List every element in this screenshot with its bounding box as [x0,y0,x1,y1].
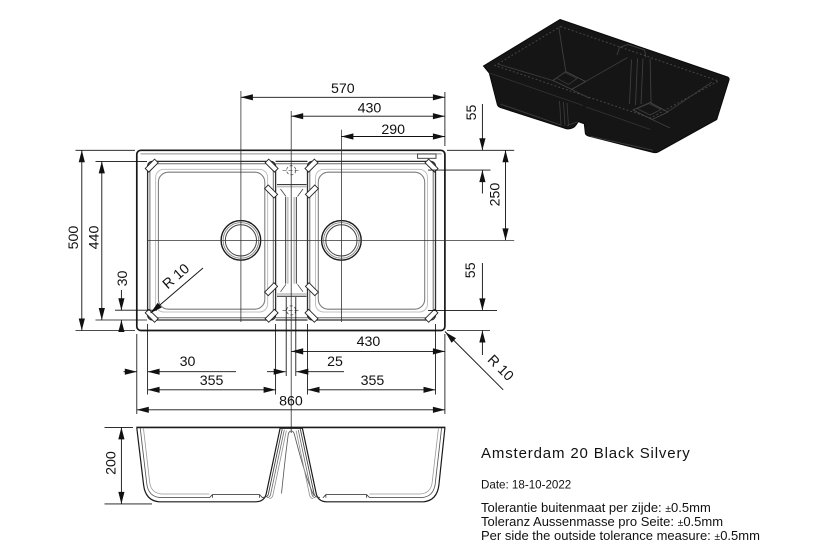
svg-text:570: 570 [331,81,355,97]
svg-text:Toleranz Aussenmasse pro Seite: Toleranz Aussenmasse pro Seite: ±0.5mm [481,514,723,529]
svg-text:200: 200 [103,451,119,475]
svg-text:250: 250 [488,183,504,207]
svg-text:30: 30 [115,271,131,287]
svg-text:Per side the outside tolerance: Per side the outside tolerance measure: … [481,528,760,543]
svg-text:55: 55 [464,105,480,121]
svg-text:Tolerantie buitenmaat per zijd: Tolerantie buitenmaat per zijde: ±0.5mm [481,500,711,515]
svg-text:440: 440 [86,226,102,250]
svg-text:430: 430 [358,101,382,117]
svg-text:355: 355 [361,373,385,389]
svg-text:25: 25 [327,354,343,370]
svg-text:Amsterdam 20 Black Silvery: Amsterdam 20 Black Silvery [481,445,691,462]
svg-text:Date: 18-10-2022: Date: 18-10-2022 [481,478,571,491]
svg-text:55: 55 [463,262,479,278]
svg-text:500: 500 [66,226,82,250]
svg-text:860: 860 [279,393,303,409]
svg-text:355: 355 [200,373,224,389]
svg-text:30: 30 [180,354,196,370]
svg-text:290: 290 [381,122,405,138]
svg-text:430: 430 [357,334,381,350]
